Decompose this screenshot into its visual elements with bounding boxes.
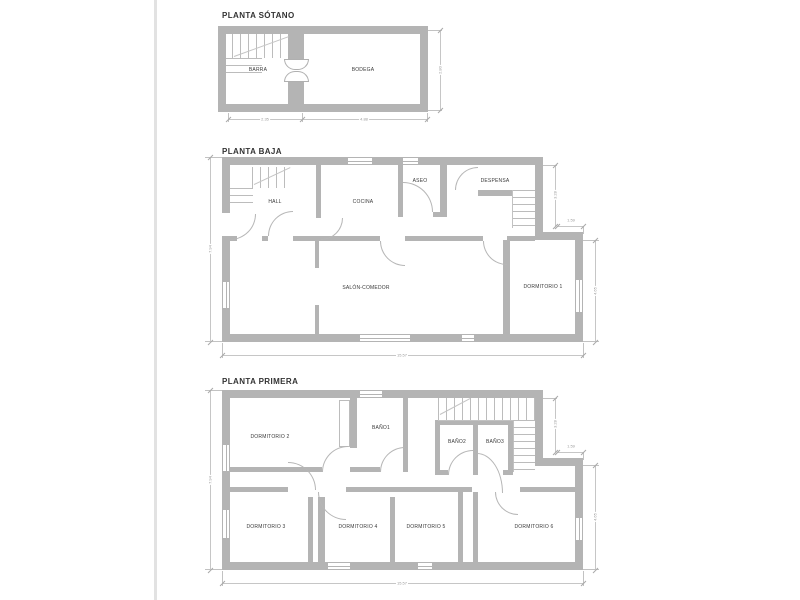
room-label: DORMITORIO 3 [231, 524, 301, 530]
room-label: DORMITORIO 4 [323, 524, 393, 530]
wall [535, 390, 543, 465]
window [222, 445, 230, 471]
wall [308, 497, 313, 562]
wall [222, 390, 230, 570]
dimension-extension [205, 569, 222, 570]
dimension-extension [583, 465, 599, 466]
window [575, 518, 583, 540]
floor-title: PLANTA PRIMERA [222, 377, 298, 386]
wall [473, 492, 478, 562]
dimension-label: 15.57 [396, 581, 408, 586]
dimension-label: 1.59 [566, 444, 576, 449]
wall [435, 470, 448, 475]
door-arc [448, 450, 473, 475]
window [222, 510, 230, 538]
room-label: DORMITORIO 5 [391, 524, 461, 530]
wall [503, 470, 513, 475]
room-label: DORMITORIO 2 [235, 434, 305, 440]
window [418, 562, 432, 570]
wall [222, 562, 583, 570]
door-arc [477, 453, 503, 493]
wall [435, 420, 440, 475]
wall [222, 390, 543, 398]
room-label: BAÑO3 [478, 439, 512, 445]
floor-plan-sheet: PLANTA SÓTANO BARRA BODEGA 2.35 4.88 [0, 0, 800, 600]
door-arc [322, 446, 348, 472]
wall [346, 487, 472, 492]
room-label: DORMITORIO 6 [499, 524, 569, 530]
dimension-label: 4.65 [593, 512, 598, 522]
wall [350, 467, 380, 472]
shaft [339, 400, 350, 447]
wall [230, 487, 288, 492]
door-arc [495, 492, 518, 515]
door-arc [380, 447, 405, 472]
wall [575, 458, 583, 570]
window [328, 562, 350, 570]
room-label: BAÑO1 [363, 425, 399, 431]
wall [350, 398, 357, 448]
dimension-line [557, 452, 583, 453]
staircase [513, 420, 535, 472]
window [360, 390, 382, 398]
wall [520, 487, 575, 492]
plan-primera: PLANTA PRIMERA [0, 0, 800, 600]
dimension-label: 3.28 [553, 419, 558, 429]
staircase [438, 398, 535, 420]
room-label: BAÑO2 [440, 439, 474, 445]
dimension-label: 7.94 [208, 475, 213, 485]
